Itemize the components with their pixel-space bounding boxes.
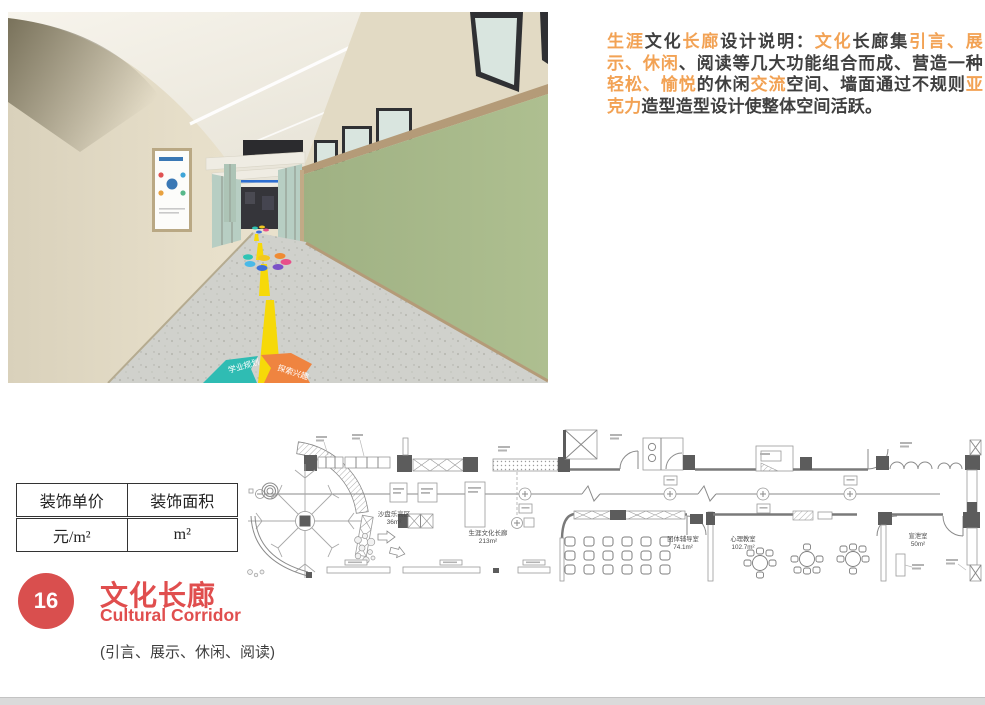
top-wall [570,438,981,518]
top-wall-structures [304,430,597,472]
section-number-badge: 16 [18,573,74,629]
room-label-sandbox: 沙盘乐高区 [378,509,411,518]
room-label-corridor: 生涯文化长廊 [469,528,509,537]
design-description: 生涯文化长廊设计说明：文化长廊集引言、展示、休闲、阅读等几大功能组合而成、营造一… [607,31,983,117]
room-area-sandbox: 36m² [387,519,403,526]
floor-plan: 沙盘乐高区 36m² 生涯文化长廊 213m² 团体辅导室 74.1m² [240,428,985,606]
direction-arrows [378,531,406,559]
corridor-render: 学业规划 探索兴趣 [0,12,548,383]
price-table: 装饰单价 装饰面积 元/m² m² [16,483,238,552]
description-segment: 文化 [645,32,683,51]
room-label-psych: 心理教室 [730,534,755,543]
far-wall-frame-2 [262,196,274,210]
floor-plan-drawing: 沙盘乐高区 36m² 生涯文化长廊 213m² 团体辅导室 74.1m² [240,428,985,606]
venting-room [896,554,966,576]
section-features: (引言、展示、休闲、阅读) [100,641,275,662]
round-tables [744,544,869,578]
room-area-corridor: 213m² [479,538,498,545]
section-number: 16 [34,588,58,614]
table-value-area: m² [127,518,238,552]
far-wall-frame [245,192,255,204]
description-segment: 设计说明： [720,32,814,51]
description-segment: 空间、墙面通过不规则 [786,75,965,94]
description-segment: 文化 [815,32,853,51]
section-subtitle: Cultural Corridor [100,605,241,626]
description-segment: 长廊集 [852,32,909,51]
slide-page: { "description": { "segments": [ {"text"… [0,0,985,705]
room-label-group: 团体辅导室 [667,534,698,543]
room-area-venting: 50m² [911,541,925,548]
wall-poster [152,148,192,232]
description-segment: 生涯 [607,32,645,51]
description-segment: 长廊 [683,32,721,51]
description-segment: 造型造型设计使整体空间活跃。 [641,97,882,116]
green-wall-endcap [300,170,304,244]
slide-bottom-edge [0,697,985,705]
table-header-area: 装饰面积 [127,484,238,518]
description-segment: 轻松、愉悦 [607,75,697,94]
room-area-psych: 102.7m² [731,544,754,551]
far-left-glass [224,164,236,222]
description-segment: 的休闲 [697,75,751,94]
room-label-venting: 宣泄室 [909,531,928,540]
corridor-label-group [512,472,535,529]
corridor-photo: 学业规划 探索兴趣 [0,12,548,383]
table-header-price: 装饰单价 [17,484,128,518]
tree-column [300,516,311,527]
room-area-group: 74.1m² [673,544,693,551]
bottom-walls [248,560,550,577]
description-segment: 交流 [751,75,787,94]
description-segment: 、阅读等几大功能组合而成、营造一种 [679,54,983,73]
table-value-price: 元/m² [17,518,128,552]
right-glass-doors [278,164,302,247]
